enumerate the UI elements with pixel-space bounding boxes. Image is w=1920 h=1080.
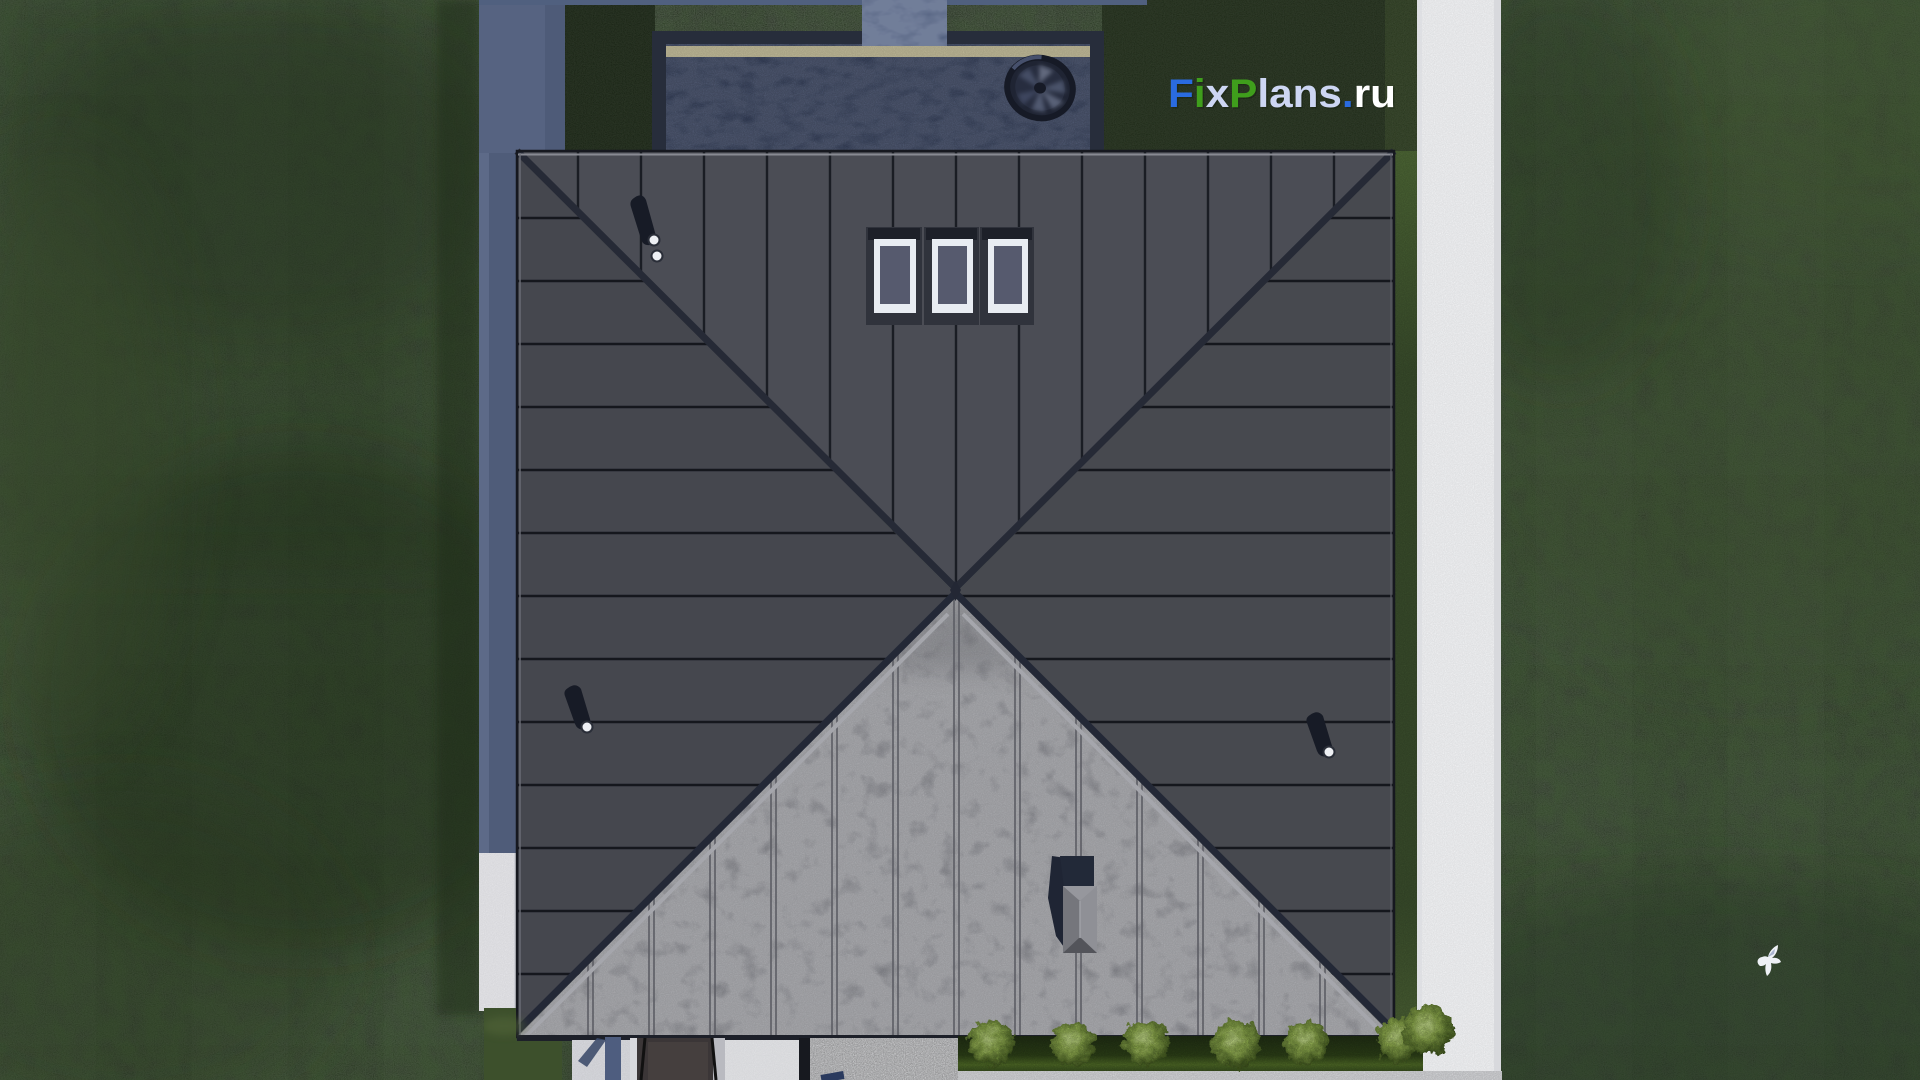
svg-text:FixPlans.ru: FixPlans.ru — [1168, 72, 1396, 116]
